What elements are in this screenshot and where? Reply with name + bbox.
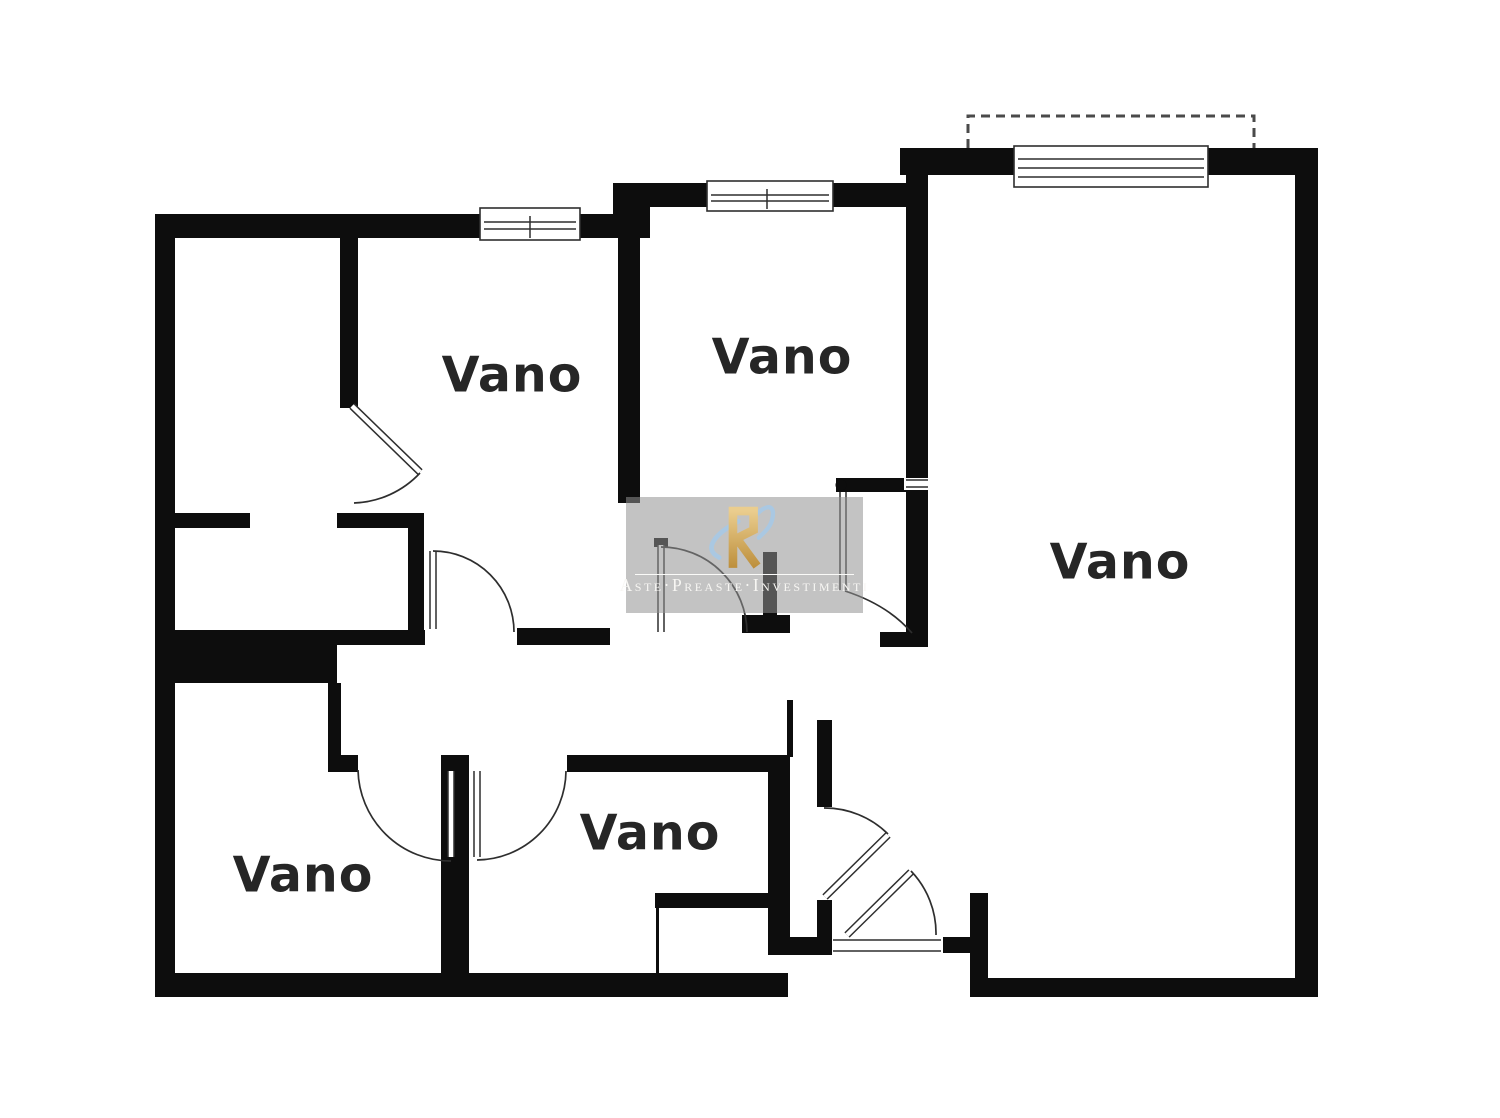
door-hinge-dot: [836, 480, 847, 491]
watermark-text: Aste·Preaste·Investimenti: [620, 577, 870, 595]
cubicle-top-wall: [655, 893, 790, 908]
aste-preaste-logo-icon: [702, 499, 788, 573]
door-arc-3: [433, 551, 514, 632]
wall-h2-left: [155, 513, 250, 528]
door-arc-6: [824, 808, 888, 834]
door-arc-1: [354, 473, 420, 503]
logo-r-mark-icon: [732, 511, 756, 568]
wall-thin-connector: [787, 700, 793, 757]
door-leaf-7: [847, 872, 911, 935]
wall-between-middle-and-right-room: [906, 148, 928, 647]
wall-h3-corridor-a: [517, 628, 610, 645]
outer-wall-right: [1295, 148, 1318, 997]
room-label-top-left: Vano: [442, 347, 583, 404]
outer-wall-bottom-left: [155, 973, 788, 997]
wall-h2-right: [337, 513, 420, 528]
wall-v1-top-left-rooms: [340, 238, 358, 408]
cubicle-left-line: [656, 908, 659, 974]
door-leaf-1: [352, 406, 420, 472]
watermark: Aste·Preaste·Investimenti: [626, 497, 863, 613]
wall-h5-right: [567, 755, 790, 772]
wall-v8b-upper: [817, 720, 832, 807]
wall-v8b-lower: [817, 900, 832, 937]
wall-h3-corridor-b: [742, 615, 790, 633]
wall-v4-corridor: [408, 513, 424, 633]
wall-v2-middle: [618, 207, 640, 503]
room-label-right: Vano: [1050, 534, 1191, 591]
wall-corridor-top-thin: [172, 630, 425, 645]
wall-v3-lower-left: [328, 683, 341, 763]
room-label-bottom-middle: Vano: [580, 805, 721, 862]
window-top-right: [1014, 146, 1208, 187]
wall-h3-corridor-c: [880, 632, 928, 647]
wall-v7-bottom-divider: [441, 755, 469, 975]
outer-wall-left: [155, 214, 175, 997]
outer-wall-bottom-right: [970, 978, 1318, 997]
window-top-middle: [707, 181, 833, 211]
wall-v8-hall-left: [768, 755, 790, 955]
door-arc-5: [477, 771, 566, 860]
door-arc-7: [911, 871, 936, 935]
door-leaf-6: [825, 835, 888, 897]
wall-h5-left-stub: [328, 755, 358, 772]
wall-band-thick: [155, 645, 337, 683]
room-label-top-middle: Vano: [712, 329, 853, 386]
floor-plan-canvas: VanoVanoVanoVanoVano Aste·Preaste·Invest…: [0, 0, 1500, 1118]
room-label-bottom-left: Vano: [233, 847, 374, 904]
entry-step-horizontal: [943, 937, 988, 953]
balcony-dashed-outline: [968, 116, 1254, 148]
